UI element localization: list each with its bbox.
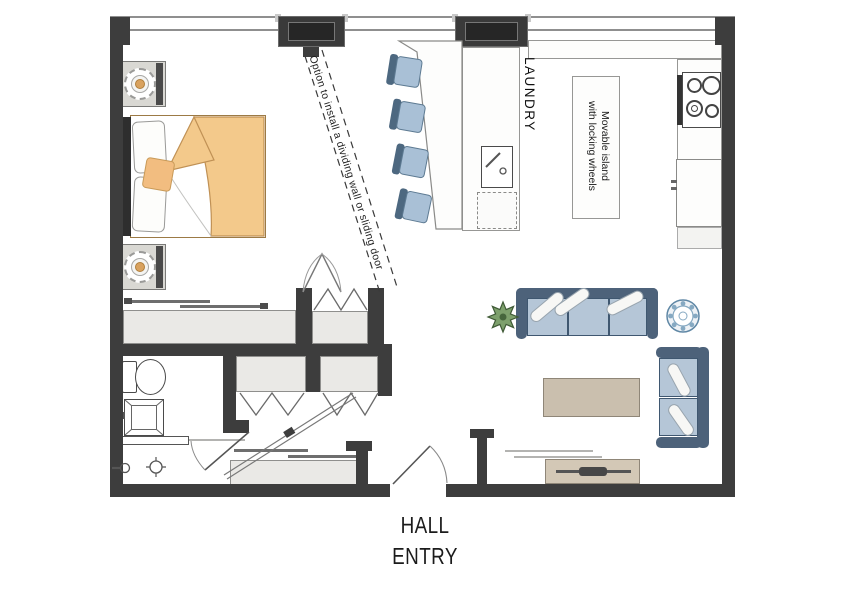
double-door-leaves xyxy=(303,254,341,292)
side-table-dots xyxy=(668,301,698,331)
coffee-table xyxy=(543,378,640,417)
refrigerator xyxy=(676,159,722,227)
wall-bottom-right xyxy=(446,484,735,497)
table-lamp xyxy=(124,68,156,100)
wall-top-cap-right xyxy=(715,17,735,45)
wall-ledge-line xyxy=(514,456,602,458)
kitchen-counter-top xyxy=(528,40,722,59)
wall-left xyxy=(110,17,123,497)
tub-drain xyxy=(150,461,162,473)
window-inner-line xyxy=(123,29,722,31)
entry-label: HALL ENTRY xyxy=(370,510,480,572)
entry-closet xyxy=(230,460,368,485)
floor-plan: Option to install a dividing wall or sli… xyxy=(0,0,842,595)
burner xyxy=(702,76,721,95)
media-console xyxy=(545,459,640,484)
toilet-bowl xyxy=(135,359,166,395)
wall-stub xyxy=(223,420,249,433)
bar-stool xyxy=(394,188,434,225)
stove-control-strip xyxy=(677,75,682,125)
stool-seat xyxy=(398,145,429,178)
wall-bathroom-east xyxy=(223,356,236,426)
wall-stub xyxy=(296,288,312,344)
sliding-door-stop xyxy=(124,298,132,304)
island-label-line1: Movable island xyxy=(598,85,611,207)
wall-top-cap-left xyxy=(110,17,130,45)
entry-label-line1: HALL xyxy=(370,510,480,541)
nightstand-edge xyxy=(156,246,163,288)
wall-right xyxy=(722,17,735,497)
laundry-sink xyxy=(481,146,513,188)
door-hardware xyxy=(283,427,295,438)
refrigerator-handle xyxy=(671,187,677,190)
hall-closet-3 xyxy=(320,356,378,392)
burner xyxy=(705,104,719,118)
burner-inner-ring xyxy=(691,105,698,112)
side-table xyxy=(667,300,699,332)
tub-edge-line xyxy=(189,439,245,441)
stool-seat xyxy=(401,190,432,224)
island-label-line2: with locking wheels xyxy=(585,85,598,207)
laundry-label: LAUNDRY xyxy=(522,57,537,132)
lamp-bulb xyxy=(135,79,145,89)
side-table-center xyxy=(679,312,687,320)
stove xyxy=(682,72,721,128)
console-center-unit xyxy=(579,467,607,476)
wall-stub xyxy=(356,450,368,486)
wall-bottom-left xyxy=(110,484,390,497)
door-arc xyxy=(191,441,205,470)
sofa-arm xyxy=(647,288,658,339)
window-outer-line xyxy=(110,16,735,18)
wall-stub xyxy=(306,356,320,392)
entry-label-line2: ENTRY xyxy=(370,541,480,572)
lamp-bulb xyxy=(135,262,145,272)
loveseat-arm xyxy=(656,437,702,448)
hall-closet-1 xyxy=(312,311,368,344)
hall-closet-2 xyxy=(236,356,306,392)
island-label: Movable island with locking wheels xyxy=(585,85,611,207)
sliding-door-track xyxy=(288,455,364,458)
side-table-inner xyxy=(673,306,693,326)
loveseat-arm xyxy=(656,347,702,358)
sliding-door-track xyxy=(128,300,210,303)
bedroom-closet xyxy=(123,310,296,344)
bifold-door xyxy=(323,393,378,415)
door-arc xyxy=(322,254,341,292)
bathroom-sink-basin xyxy=(131,405,157,430)
refrigerator-handle xyxy=(671,180,677,183)
plant xyxy=(488,302,518,332)
accent-pillow xyxy=(142,157,176,193)
wall-ledge-line xyxy=(505,450,593,452)
wall-stub xyxy=(368,288,384,344)
bar-stool xyxy=(386,54,424,90)
dashed-divider-line xyxy=(322,50,397,287)
stool-seat xyxy=(396,100,427,133)
under-counter-appliance xyxy=(477,192,517,229)
burner xyxy=(687,78,702,93)
wall-bathroom-north xyxy=(110,344,392,356)
tub-drain-cross xyxy=(146,457,166,477)
column-block-inner xyxy=(288,22,335,41)
bar-stool xyxy=(391,143,430,180)
tub-half-wall xyxy=(121,436,189,445)
sliding-door-track xyxy=(180,305,266,308)
wall-entry-wing xyxy=(477,437,487,485)
sliding-door-track xyxy=(234,449,308,452)
nightstand-edge xyxy=(156,63,163,105)
loveseat-back xyxy=(697,347,709,448)
bar-stool xyxy=(389,98,428,134)
door-arc xyxy=(303,254,322,292)
divider-note: Option to install a dividing wall or sli… xyxy=(307,54,386,271)
stool-seat xyxy=(393,56,423,89)
door-arc xyxy=(430,446,447,483)
column-block-inner xyxy=(465,22,518,41)
entry-door-leaf xyxy=(393,446,430,484)
sliding-door-stop xyxy=(260,303,268,309)
bifold-door xyxy=(240,393,304,415)
kitchen-cabinet xyxy=(677,227,722,249)
bifold-door xyxy=(314,289,367,310)
table-lamp xyxy=(124,251,156,283)
wall-stub xyxy=(378,344,392,396)
plant-center xyxy=(500,314,507,321)
sofa-arm xyxy=(516,288,527,339)
